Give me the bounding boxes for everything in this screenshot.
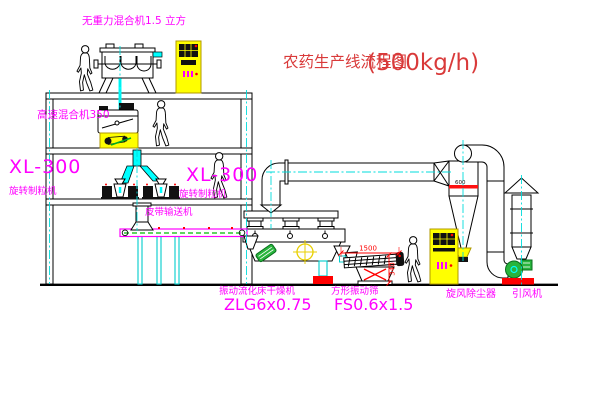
exhaust-duct <box>261 160 449 213</box>
cyclone-downcomer-pipe <box>487 181 504 252</box>
granulator-right <box>142 179 180 200</box>
indicator-light <box>195 45 198 48</box>
drawing-title: 农药生产线流程图 (500kg/h) <box>283 50 479 76</box>
dryer-riser-2 <box>283 218 299 230</box>
label-gravity-mixer: 无重力混合机1.5 立方 <box>82 14 186 27</box>
label-screen-model: FS0.6x1.5 <box>334 295 413 314</box>
label-granulator-left-name: 旋转制粒机 <box>9 185 57 197</box>
gravity-free-mixer <box>94 44 162 110</box>
cyclone-marking-text: 600 <box>455 180 466 186</box>
label-granulator-right-name: 旋转制粒机 <box>179 188 227 200</box>
control-cabinet-top <box>176 41 201 93</box>
dryer-foot-base <box>313 276 333 284</box>
dryer-riser-1 <box>247 218 263 230</box>
belt-conveyor <box>120 227 258 284</box>
control-cabinet-right <box>430 229 458 284</box>
fan-base <box>502 278 534 285</box>
indicator-light <box>450 264 453 267</box>
screen-drive-roller <box>395 252 404 267</box>
label-granulator-left-model: XL-300 <box>9 156 81 178</box>
label-cyclone: 旋风除尘器 <box>446 287 496 300</box>
label-granulator-right-model: XL-300 <box>186 164 258 186</box>
indicator-light <box>195 73 198 76</box>
label-fan: 引风机 <box>512 287 542 300</box>
dryer-support-foot <box>319 261 327 276</box>
diagram-svg: 1500 340 600 无重力混合机1.5 立方 高速混合机350 XL-30… <box>0 0 600 403</box>
mixer-outlet-pipe <box>153 52 162 57</box>
label-belt-conveyor: 皮带输送机 <box>145 206 193 218</box>
granulator-section <box>101 150 180 230</box>
indicator-light <box>451 234 454 237</box>
granulator-left <box>101 179 139 200</box>
label-high-speed-mixer: 高速混合机350 <box>37 108 110 121</box>
dim-340: 340 <box>389 262 397 275</box>
operator-figure-4 <box>405 237 421 282</box>
dryer-riser-3 <box>318 218 334 230</box>
title-capacity: (500kg/h) <box>367 50 479 76</box>
operator-figure-1 <box>77 46 93 91</box>
dim-1500: 1500 <box>359 245 377 253</box>
fluid-bed-dryer <box>243 211 350 284</box>
label-dryer-model: ZLG6x0.75 <box>224 295 312 314</box>
operator-figure-2 <box>153 101 169 146</box>
cad-flow-diagram: 1500 340 600 无重力混合机1.5 立方 高速混合机350 XL-30… <box>0 0 600 403</box>
